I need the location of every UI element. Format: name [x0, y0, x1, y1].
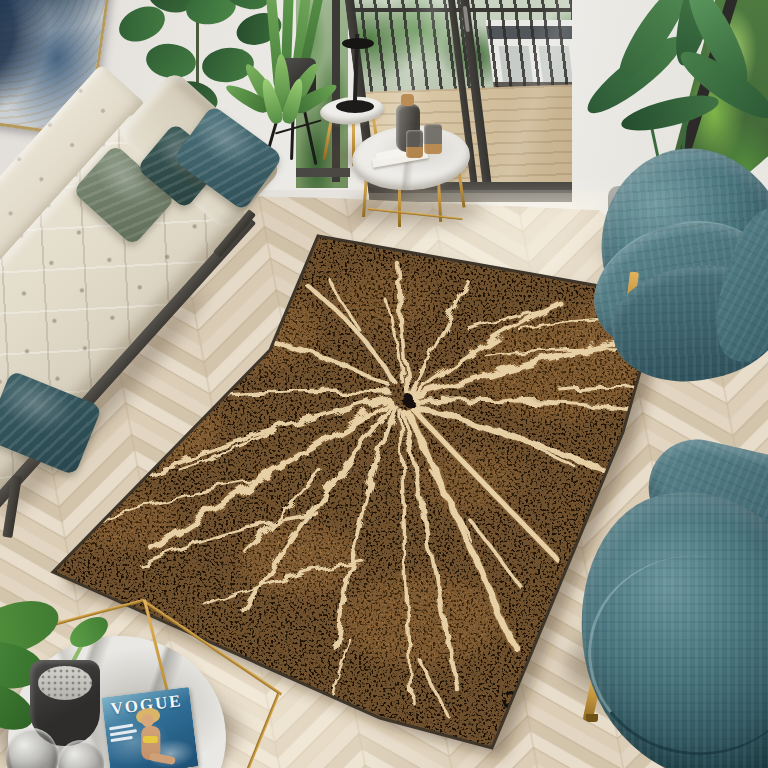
plant-leaf	[184, 0, 239, 28]
magazine-cover-text	[109, 724, 133, 730]
living-room-scene: VOGUE	[0, 0, 768, 768]
cover-model-legs	[149, 752, 176, 765]
pot-pebbles	[38, 666, 92, 700]
agave-plant	[238, 52, 328, 137]
armchair-leg-cap	[586, 714, 598, 722]
lamp-base	[336, 100, 374, 113]
drinking-glass	[406, 130, 423, 158]
magazine-cover-text	[110, 729, 137, 736]
plant-leaf	[65, 611, 113, 654]
drinking-glass	[424, 124, 442, 154]
bottle-cork	[401, 94, 414, 106]
lamp-disc	[342, 38, 374, 49]
vogue-magazine: VOGUE	[101, 687, 198, 768]
cover-model-swimsuit	[143, 736, 158, 743]
magazine-cover-text	[111, 736, 133, 742]
plant-leaf	[618, 88, 721, 137]
floor-lamp	[334, 30, 380, 116]
